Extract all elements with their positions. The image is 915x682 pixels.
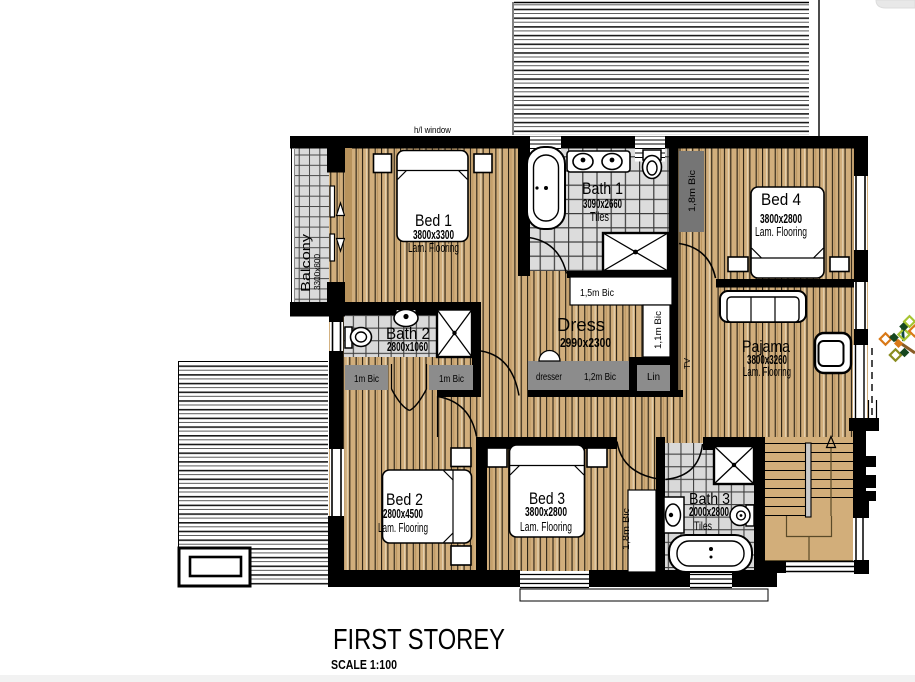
- svg-text:3090x2660: 3090x2660: [583, 196, 622, 211]
- svg-text:Balcony: Balcony: [299, 233, 313, 292]
- svg-text:2800x4500: 2800x4500: [383, 506, 423, 521]
- svg-text:Lam. Flooring: Lam. Flooring: [755, 224, 807, 239]
- svg-text:1,8m Bic: 1,8m Bic: [687, 170, 698, 212]
- svg-text:Lam. Flooring: Lam. Flooring: [743, 364, 791, 379]
- svg-text:1,5m Bic: 1,5m Bic: [580, 288, 614, 299]
- svg-text:Lam. Flooring: Lam. Flooring: [520, 519, 572, 534]
- svg-text:Tiles: Tiles: [694, 519, 712, 533]
- svg-text:Lam. Flooring: Lam. Flooring: [378, 520, 428, 535]
- svg-text:2800x1060: 2800x1060: [387, 339, 428, 354]
- svg-text:TV: TV: [682, 358, 692, 369]
- svg-text:SCALE 1:100: SCALE 1:100: [331, 657, 397, 672]
- svg-text:1m Bic: 1m Bic: [439, 374, 464, 385]
- svg-text:1,1m Bic: 1,1m Bic: [653, 311, 664, 349]
- svg-text:2990x2300: 2990x2300: [560, 335, 611, 350]
- svg-text:1,2m Bic: 1,2m Bic: [584, 372, 616, 383]
- svg-text:dresser: dresser: [536, 372, 563, 383]
- svg-text:Tiles: Tiles: [590, 210, 609, 224]
- svg-text:Lin: Lin: [647, 372, 660, 383]
- svg-text:Lam. Flooring: Lam. Flooring: [408, 240, 459, 255]
- svg-text:h/l window: h/l window: [414, 125, 451, 135]
- svg-text:1,8m Bic: 1,8m Bic: [621, 508, 632, 550]
- svg-text:Dress: Dress: [557, 315, 605, 335]
- svg-text:FIRST STOREY: FIRST STOREY: [333, 624, 505, 656]
- svg-text:1m Bic: 1m Bic: [354, 374, 379, 385]
- svg-text:3300x800: 3300x800: [312, 254, 322, 290]
- svg-text:2000x2800: 2000x2800: [689, 504, 729, 519]
- svg-text:Bed 4: Bed 4: [761, 190, 801, 209]
- svg-text:3800x2800: 3800x2800: [525, 504, 567, 519]
